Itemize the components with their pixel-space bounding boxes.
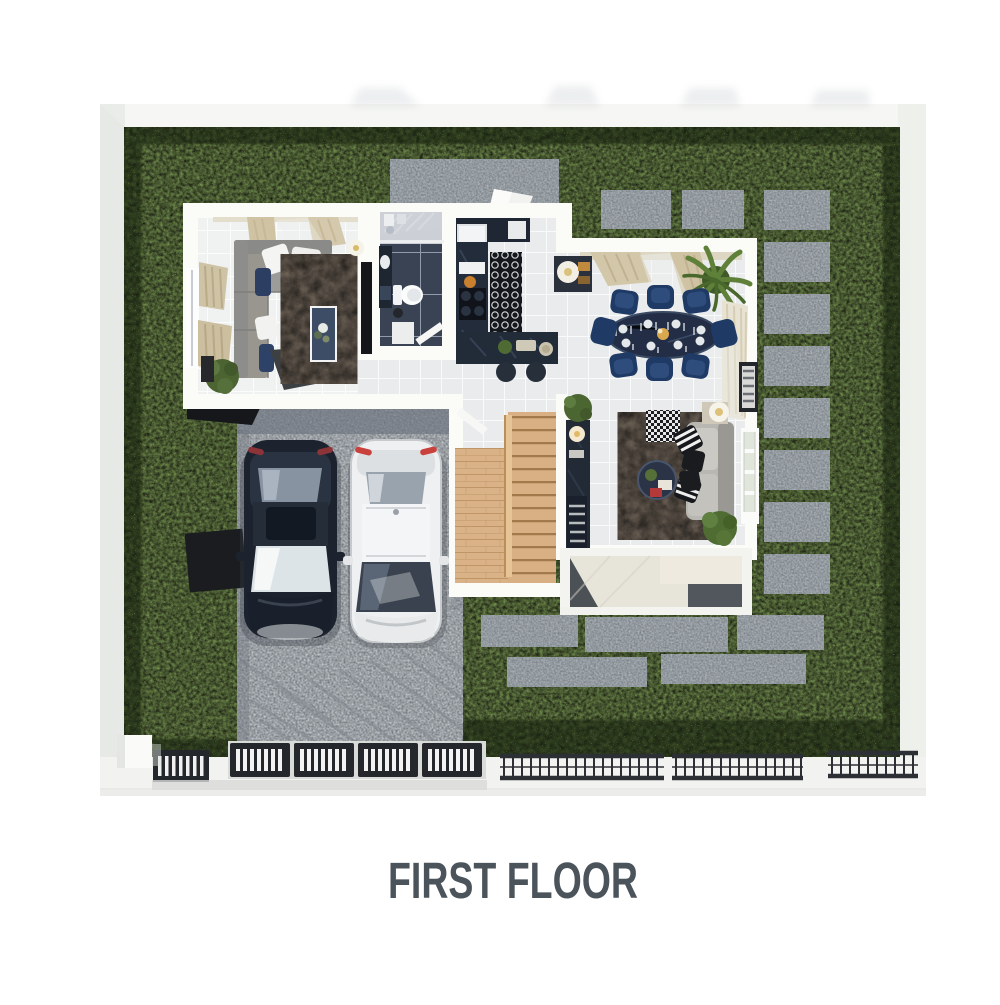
svg-text:FIRST FLOOR: FIRST FLOOR [388,852,638,909]
